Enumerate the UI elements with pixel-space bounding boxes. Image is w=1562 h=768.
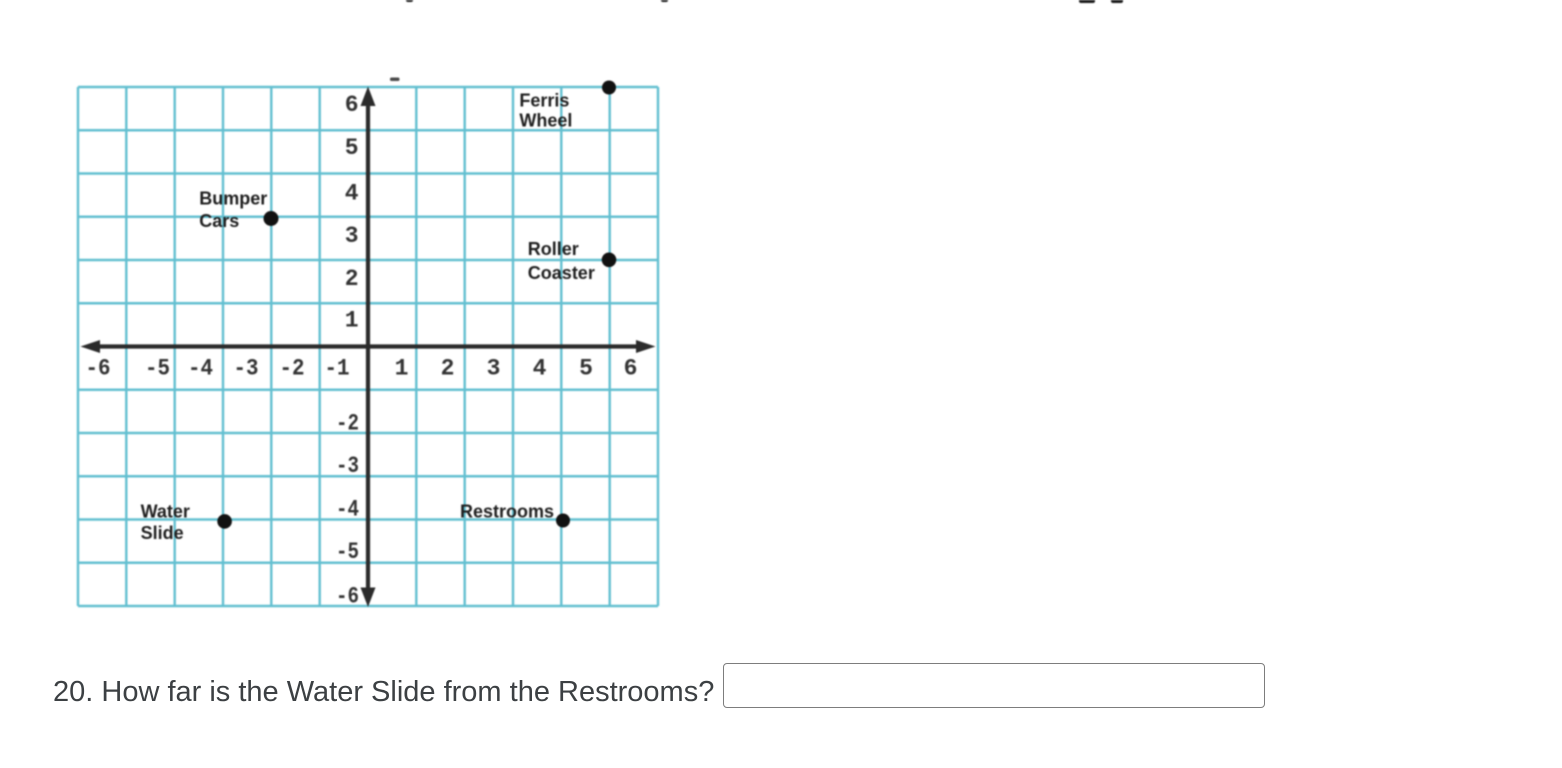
svg-text:-2: -2	[336, 411, 359, 437]
svg-text:-4: -4	[336, 497, 359, 523]
svg-text:Coaster: Coaster	[528, 263, 595, 283]
svg-text:Restrooms: Restrooms	[460, 501, 554, 521]
svg-text:2: 2	[441, 356, 455, 382]
svg-text:-5: -5	[336, 539, 359, 565]
svg-text:Bumper: Bumper	[199, 188, 267, 208]
svg-text:1: 1	[345, 308, 359, 334]
svg-text:5: 5	[345, 135, 359, 161]
svg-text:Slide: Slide	[141, 523, 184, 543]
svg-text:-6: -6	[86, 356, 111, 382]
svg-text:3: 3	[487, 356, 501, 382]
svg-text:Roller: Roller	[528, 239, 579, 259]
svg-text:-3: -3	[234, 356, 259, 382]
svg-text:-6: -6	[336, 583, 359, 609]
svg-text:3: 3	[345, 223, 359, 249]
svg-text:5: 5	[579, 356, 593, 382]
svg-text:-3: -3	[336, 453, 359, 479]
svg-text:1: 1	[395, 356, 409, 382]
svg-text:6: 6	[624, 356, 638, 382]
svg-text:-4: -4	[188, 356, 213, 382]
svg-text:Ferris: Ferris	[519, 90, 569, 110]
svg-text:-5: -5	[145, 356, 170, 382]
svg-text:2: 2	[345, 266, 359, 292]
svg-text:4: 4	[345, 181, 359, 207]
svg-text:6: 6	[345, 92, 359, 118]
svg-text:Wheel: Wheel	[519, 111, 572, 131]
svg-text:-1: -1	[325, 356, 350, 382]
svg-text:4: 4	[533, 356, 547, 382]
svg-text:-2: -2	[280, 356, 305, 382]
svg-text:Water: Water	[141, 501, 190, 521]
svg-text:Cars: Cars	[199, 211, 239, 231]
